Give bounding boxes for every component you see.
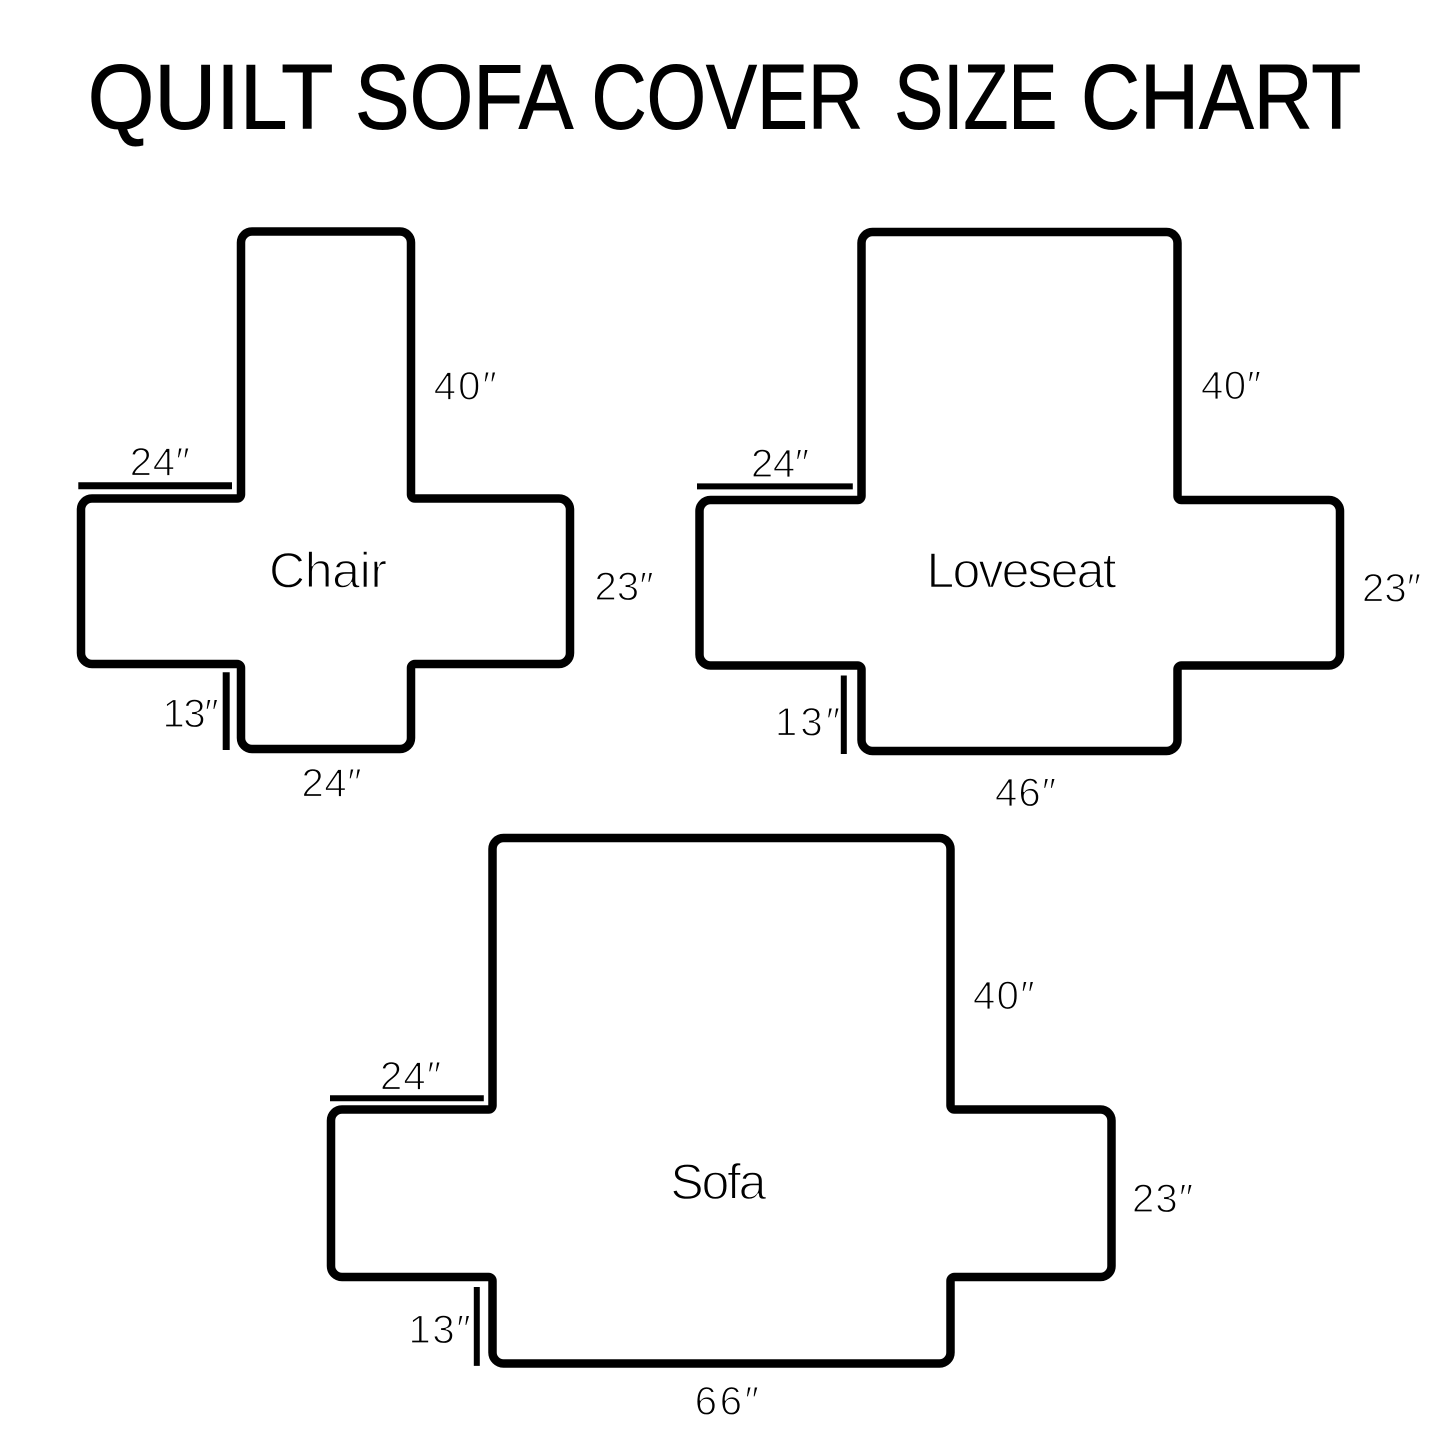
svg-text:24″: 24″	[130, 441, 190, 485]
svg-text:13″: 13″	[775, 700, 840, 744]
svg-text:24″: 24″	[302, 762, 362, 806]
svg-text:13″: 13″	[409, 1308, 471, 1352]
svg-text:23″: 23″	[1362, 567, 1421, 611]
svg-text:40″: 40″	[973, 974, 1035, 1018]
svg-text:QUILT: QUILT	[88, 47, 334, 149]
svg-text:24″: 24″	[751, 442, 809, 486]
svg-text:66″: 66″	[695, 1380, 759, 1424]
svg-text:40″: 40″	[434, 365, 497, 409]
svg-text:23″: 23″	[595, 565, 654, 609]
svg-text:COVER: COVER	[592, 47, 864, 149]
svg-text:24″: 24″	[380, 1054, 441, 1098]
svg-text:Chair: Chair	[269, 543, 387, 599]
svg-text:CHART: CHART	[1081, 47, 1361, 149]
svg-text:Loveseat: Loveseat	[927, 543, 1117, 599]
svg-text:40″: 40″	[1201, 364, 1261, 408]
svg-text:SIZE: SIZE	[894, 47, 1057, 149]
svg-text:46″: 46″	[995, 771, 1056, 815]
svg-text:SOFA: SOFA	[355, 47, 574, 149]
svg-text:13″: 13″	[163, 692, 219, 736]
svg-text:23″: 23″	[1132, 1177, 1193, 1221]
svg-text:Sofa: Sofa	[670, 1154, 766, 1210]
